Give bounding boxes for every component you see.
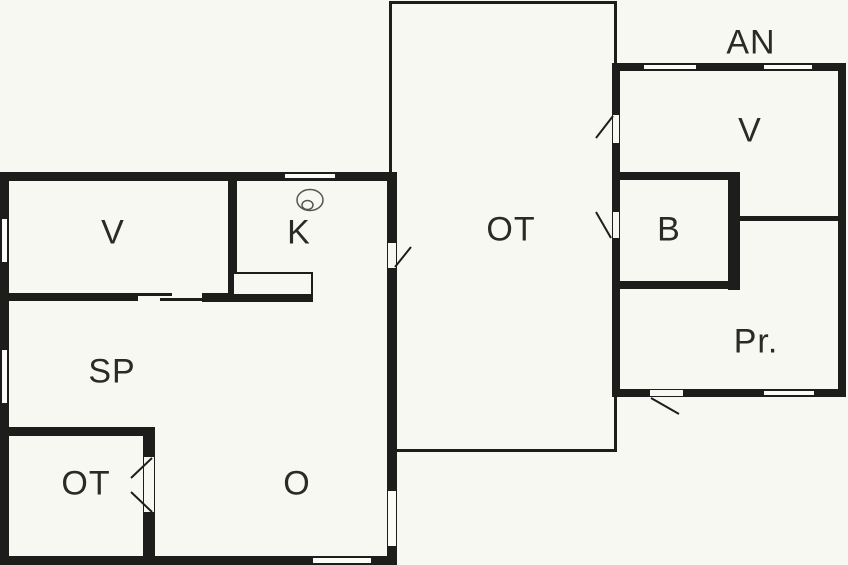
door-swing-ot-to-v — [596, 116, 613, 138]
room-label-middle-ot: OT — [486, 211, 535, 250]
room-label-left-v: V — [101, 214, 125, 253]
room-label-left-sp: SP — [88, 353, 135, 392]
room-label-right-pr: Pr. — [734, 323, 779, 362]
room-label-left-o: O — [283, 465, 310, 504]
lamp-icon — [297, 190, 323, 211]
room-label-annex-ot: OT — [61, 465, 110, 504]
floor-plan: V K SP OT O OT AN V B Pr. — [0, 0, 848, 565]
door-swing-o-to-ot — [395, 247, 411, 267]
door-swing-pr-exit — [651, 398, 679, 414]
door-swing-ot-to-b — [596, 212, 611, 238]
room-label-left-k: K — [287, 214, 311, 253]
plan-symbols-layer — [0, 0, 848, 565]
room-label-right-b: B — [657, 211, 681, 250]
door-leaf-annex-bottom — [131, 492, 152, 512]
room-label-right-v: V — [738, 112, 762, 151]
door-leaf-annex-top — [131, 458, 152, 478]
building-label-an: AN — [726, 24, 775, 63]
